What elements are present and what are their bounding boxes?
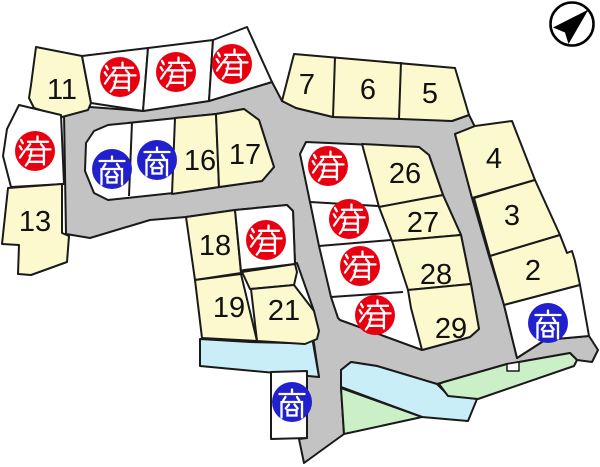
svg-text:13: 13 <box>19 206 51 238</box>
svg-text:19: 19 <box>213 292 245 324</box>
svg-text:28: 28 <box>420 259 452 291</box>
svg-text:6: 6 <box>360 74 376 106</box>
svg-text:27: 27 <box>407 207 439 239</box>
svg-text:5: 5 <box>422 78 438 110</box>
svg-text:18: 18 <box>199 230 231 262</box>
svg-text:16: 16 <box>184 145 216 177</box>
svg-text:21: 21 <box>268 295 300 327</box>
svg-text:29: 29 <box>435 313 467 345</box>
svg-text:26: 26 <box>389 158 421 190</box>
svg-text:11: 11 <box>47 74 77 106</box>
svg-text:2: 2 <box>525 255 541 287</box>
svg-text:7: 7 <box>299 69 315 101</box>
svg-text:17: 17 <box>229 139 261 171</box>
svg-text:4: 4 <box>486 143 502 175</box>
svg-text:3: 3 <box>504 200 520 232</box>
